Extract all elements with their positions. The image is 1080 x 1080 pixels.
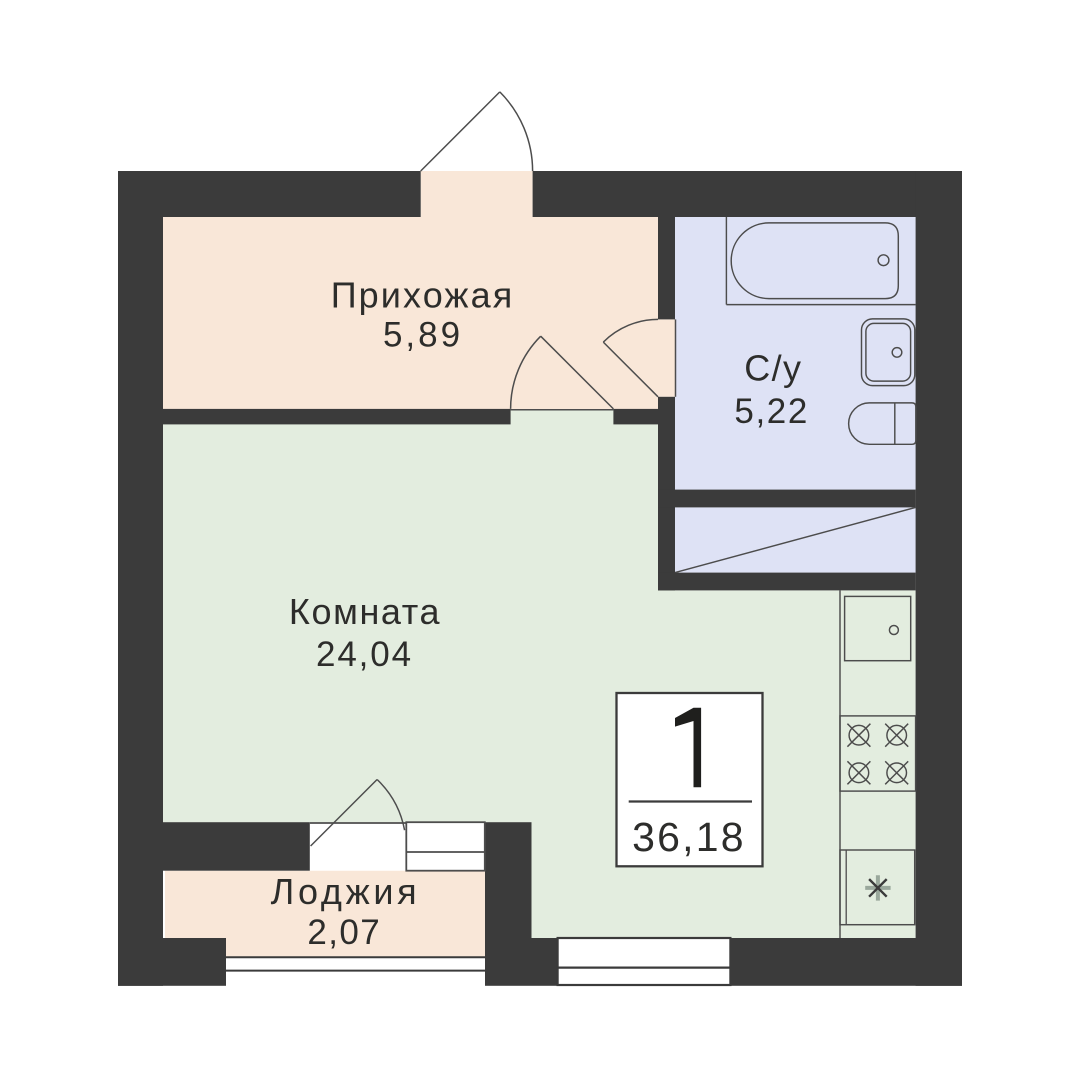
svg-text:Лоджия: Лоджия: [271, 871, 421, 912]
svg-text:2,07: 2,07: [307, 913, 381, 952]
svg-text:Комната: Комната: [289, 591, 441, 632]
svg-text:5,89: 5,89: [383, 316, 463, 355]
svg-text:36,18: 36,18: [632, 814, 746, 860]
svg-text:5,22: 5,22: [734, 392, 809, 431]
svg-text:Прихожая: Прихожая: [331, 275, 515, 316]
svg-text:С/у: С/у: [744, 348, 802, 389]
svg-text:24,04: 24,04: [316, 635, 413, 674]
